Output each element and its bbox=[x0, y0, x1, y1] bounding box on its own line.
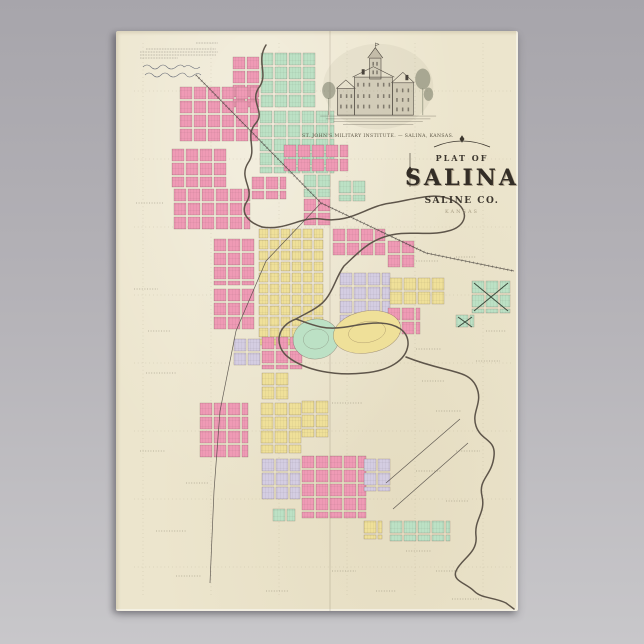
lot-lines bbox=[230, 217, 242, 229]
lot-lines bbox=[234, 353, 246, 365]
lot-lines bbox=[302, 456, 314, 468]
lot-lines bbox=[276, 365, 288, 369]
lot-lines bbox=[172, 177, 184, 187]
lot-lines bbox=[228, 303, 240, 315]
lot-lines bbox=[486, 281, 498, 293]
building-engraving bbox=[320, 43, 436, 129]
lot-lines bbox=[284, 159, 296, 171]
lot-lines bbox=[303, 67, 315, 79]
lot-lines bbox=[261, 95, 273, 107]
lot-lines bbox=[340, 301, 352, 313]
lot-lines bbox=[316, 484, 328, 496]
lot-lines bbox=[214, 431, 226, 443]
lot-lines bbox=[234, 339, 246, 351]
lot-lines bbox=[262, 473, 274, 485]
lot-lines bbox=[228, 431, 240, 443]
lot-lines bbox=[186, 177, 198, 187]
lot-lines bbox=[270, 240, 279, 249]
lot-lines bbox=[200, 431, 212, 443]
lot-lines bbox=[233, 71, 245, 83]
map-title-plat-of: PLAT OF bbox=[436, 153, 489, 163]
lot-lines bbox=[298, 159, 310, 171]
lot-lines bbox=[312, 159, 324, 171]
lot-lines bbox=[228, 289, 240, 301]
lot-lines bbox=[275, 431, 287, 443]
lot-lines bbox=[281, 240, 290, 249]
lot-lines bbox=[303, 262, 312, 271]
lot-lines bbox=[432, 521, 444, 533]
lot-lines bbox=[202, 189, 214, 201]
lot-lines bbox=[214, 253, 226, 265]
lot-lines bbox=[364, 459, 376, 471]
lot-lines bbox=[270, 262, 279, 271]
lot-lines bbox=[368, 273, 380, 285]
lot-lines bbox=[275, 67, 287, 79]
lot-lines bbox=[354, 287, 366, 299]
lot-lines bbox=[304, 175, 316, 187]
lot-lines bbox=[214, 289, 226, 301]
lot-lines bbox=[318, 199, 330, 211]
lot-lines bbox=[390, 535, 402, 541]
lot-lines bbox=[378, 535, 382, 539]
lot-lines bbox=[214, 149, 226, 161]
signature-script bbox=[143, 65, 201, 77]
lot-lines bbox=[292, 284, 301, 293]
lot-lines bbox=[222, 87, 234, 99]
lot-lines bbox=[390, 278, 402, 290]
lot-lines bbox=[262, 387, 274, 399]
lot-lines bbox=[340, 159, 348, 171]
lot-lines bbox=[340, 145, 348, 157]
lot-lines bbox=[186, 163, 198, 175]
lot-lines bbox=[194, 129, 206, 141]
lot-lines bbox=[248, 339, 260, 351]
lot-lines bbox=[340, 273, 352, 285]
lot-lines bbox=[446, 535, 450, 541]
lot-lines bbox=[174, 203, 186, 215]
lot-lines bbox=[404, 278, 416, 290]
lot-lines bbox=[259, 240, 268, 249]
lot-lines bbox=[228, 267, 240, 279]
lot-lines bbox=[180, 101, 192, 113]
lot-lines bbox=[354, 273, 366, 285]
lot-lines bbox=[262, 351, 274, 363]
lot-lines bbox=[275, 417, 287, 429]
lot-lines bbox=[200, 445, 212, 457]
lot-lines bbox=[242, 445, 248, 457]
lot-lines bbox=[180, 87, 192, 99]
lot-lines bbox=[200, 163, 212, 175]
studio-background: { "poster": { "title": { "plat_of": "PLA… bbox=[0, 0, 644, 644]
lot-lines bbox=[344, 470, 356, 482]
lot-lines bbox=[216, 189, 228, 201]
lot-lines bbox=[186, 149, 198, 161]
lot-lines bbox=[303, 273, 312, 282]
lot-lines bbox=[358, 512, 366, 518]
lot-lines bbox=[202, 203, 214, 215]
lot-lines bbox=[330, 456, 342, 468]
lot-lines bbox=[402, 308, 414, 320]
lot-lines bbox=[302, 111, 314, 123]
lot-lines bbox=[364, 487, 376, 491]
lot-lines bbox=[247, 71, 259, 83]
lot-lines bbox=[364, 473, 376, 485]
lot-lines bbox=[303, 53, 315, 65]
lot-lines bbox=[266, 177, 278, 189]
lot-lines bbox=[242, 239, 254, 251]
lot-lines bbox=[180, 115, 192, 127]
lot-lines bbox=[188, 189, 200, 201]
lot-lines bbox=[292, 229, 301, 238]
lot-lines bbox=[472, 309, 484, 313]
lot-lines bbox=[280, 177, 286, 189]
engraving-caption: ST. JOHN'S MILITARY INSTITUTE. — SALINA,… bbox=[302, 133, 454, 139]
lot-lines bbox=[275, 81, 287, 93]
lot-lines bbox=[276, 337, 288, 349]
lot-lines bbox=[333, 229, 345, 241]
lot-lines bbox=[260, 139, 272, 151]
lot-lines bbox=[382, 287, 390, 299]
lot-lines bbox=[402, 255, 414, 267]
lot-lines bbox=[281, 295, 290, 304]
lot-lines bbox=[270, 295, 279, 304]
lot-lines bbox=[266, 191, 278, 199]
lot-lines bbox=[230, 203, 242, 215]
lot-lines bbox=[261, 403, 273, 415]
lot-lines bbox=[290, 487, 300, 499]
lot-lines bbox=[303, 295, 312, 304]
lot-lines bbox=[314, 284, 323, 293]
lot-lines bbox=[333, 243, 345, 255]
lot-lines bbox=[418, 292, 430, 304]
lot-lines bbox=[276, 473, 288, 485]
lot-lines bbox=[276, 387, 288, 399]
lot-lines bbox=[330, 111, 334, 123]
lot-lines bbox=[281, 251, 290, 260]
lot-lines bbox=[303, 284, 312, 293]
lot-lines bbox=[248, 353, 260, 365]
lot-lines bbox=[418, 521, 430, 533]
lot-lines bbox=[290, 459, 300, 471]
lot-lines bbox=[262, 337, 274, 349]
lot-lines bbox=[214, 445, 226, 457]
lot-lines bbox=[202, 217, 214, 229]
lot-lines bbox=[326, 159, 338, 171]
lot-lines bbox=[228, 317, 240, 329]
lot-lines bbox=[228, 417, 240, 429]
lot-lines bbox=[281, 273, 290, 282]
lot-lines bbox=[314, 240, 323, 249]
lot-lines bbox=[368, 287, 380, 299]
lot-lines bbox=[262, 373, 274, 385]
lot-lines bbox=[314, 262, 323, 271]
lot-lines bbox=[416, 322, 420, 334]
lot-lines bbox=[281, 284, 290, 293]
lot-lines bbox=[361, 229, 373, 241]
lot-lines bbox=[222, 129, 234, 141]
lot-lines bbox=[432, 278, 444, 290]
lot-lines bbox=[470, 315, 474, 327]
city-blocks bbox=[172, 53, 510, 541]
lot-lines bbox=[281, 306, 290, 315]
lot-lines bbox=[200, 417, 212, 429]
lot-lines bbox=[172, 163, 184, 175]
lot-lines bbox=[242, 403, 248, 415]
lot-lines bbox=[289, 431, 301, 443]
lot-lines bbox=[318, 175, 330, 187]
lot-lines bbox=[242, 281, 254, 285]
lot-lines bbox=[214, 267, 226, 279]
lot-lines bbox=[358, 498, 366, 510]
lot-lines bbox=[281, 262, 290, 271]
lot-lines bbox=[289, 403, 301, 415]
lot-lines bbox=[214, 163, 226, 175]
lot-lines bbox=[208, 115, 220, 127]
lot-lines bbox=[275, 53, 287, 65]
lot-lines bbox=[303, 95, 315, 107]
lot-lines bbox=[242, 431, 248, 443]
lot-lines bbox=[292, 251, 301, 260]
lot-lines bbox=[276, 459, 288, 471]
lot-lines bbox=[364, 535, 376, 539]
lot-lines bbox=[316, 111, 328, 123]
lot-lines bbox=[174, 217, 186, 229]
lot-lines bbox=[303, 240, 312, 249]
lot-lines bbox=[316, 512, 328, 518]
lot-lines bbox=[302, 498, 314, 510]
lot-lines bbox=[276, 373, 288, 385]
lot-lines bbox=[378, 487, 390, 491]
lot-lines bbox=[200, 177, 212, 187]
lot-lines bbox=[242, 267, 254, 279]
lot-lines bbox=[216, 217, 228, 229]
lot-lines bbox=[180, 129, 192, 141]
lot-lines bbox=[228, 403, 240, 415]
lot-lines bbox=[292, 240, 301, 249]
lot-lines bbox=[214, 239, 226, 251]
lot-lines bbox=[274, 125, 286, 137]
map-title-state: KANSAS bbox=[445, 209, 479, 215]
lot-lines bbox=[188, 217, 200, 229]
map-title-city: SALINA bbox=[405, 165, 518, 191]
lot-lines bbox=[303, 81, 315, 93]
lot-lines bbox=[261, 81, 273, 93]
lot-lines bbox=[298, 145, 310, 157]
lot-lines bbox=[259, 306, 268, 315]
lot-lines bbox=[276, 351, 288, 363]
lot-lines bbox=[316, 470, 328, 482]
lot-lines bbox=[259, 328, 268, 337]
lot-lines bbox=[236, 129, 248, 141]
lot-lines bbox=[344, 484, 356, 496]
lot-lines bbox=[404, 292, 416, 304]
lot-lines bbox=[200, 149, 212, 161]
lot-lines bbox=[259, 229, 268, 238]
lot-lines bbox=[260, 153, 272, 165]
lot-lines bbox=[314, 273, 323, 282]
lot-lines bbox=[344, 512, 356, 518]
lot-lines bbox=[216, 203, 228, 215]
lot-lines bbox=[432, 535, 444, 541]
lot-lines bbox=[500, 281, 510, 293]
lot-lines bbox=[188, 203, 200, 215]
lot-lines bbox=[314, 229, 323, 238]
lot-lines bbox=[303, 229, 312, 238]
lot-lines bbox=[261, 445, 273, 453]
lot-lines bbox=[194, 115, 206, 127]
lot-lines bbox=[316, 456, 328, 468]
lot-lines bbox=[288, 111, 300, 123]
lot-lines bbox=[288, 125, 300, 137]
lot-lines bbox=[364, 521, 376, 533]
lot-lines bbox=[316, 429, 328, 437]
lot-lines bbox=[289, 53, 301, 65]
lot-lines bbox=[375, 243, 385, 255]
lot-lines bbox=[194, 87, 206, 99]
lot-lines bbox=[339, 195, 351, 201]
lot-lines bbox=[214, 317, 226, 329]
lot-lines bbox=[500, 309, 510, 313]
lot-lines bbox=[292, 295, 301, 304]
certification-note bbox=[140, 43, 218, 58]
lot-lines bbox=[275, 403, 287, 415]
lot-lines bbox=[292, 262, 301, 271]
map-poster: ST. JOHN'S MILITARY INSTITUTE. — SALINA,… bbox=[116, 31, 518, 611]
lot-lines bbox=[287, 509, 295, 521]
lot-lines bbox=[284, 145, 296, 157]
lot-lines bbox=[318, 189, 330, 197]
lot-lines bbox=[289, 445, 301, 453]
lot-lines bbox=[418, 278, 430, 290]
lot-lines bbox=[340, 287, 352, 299]
lot-lines bbox=[262, 487, 274, 499]
lot-lines bbox=[290, 365, 302, 369]
lot-lines bbox=[302, 512, 314, 518]
lot-lines bbox=[418, 535, 430, 541]
lot-lines bbox=[289, 67, 301, 79]
tower bbox=[370, 58, 381, 79]
lot-lines bbox=[316, 415, 328, 427]
lot-lines bbox=[378, 521, 382, 533]
lot-lines bbox=[194, 101, 206, 113]
lot-lines bbox=[260, 167, 272, 173]
lot-lines bbox=[270, 273, 279, 282]
lot-lines bbox=[330, 484, 342, 496]
lot-lines bbox=[432, 292, 444, 304]
lot-lines bbox=[228, 253, 240, 265]
lot-lines bbox=[446, 521, 450, 533]
lot-lines bbox=[302, 470, 314, 482]
lot-lines bbox=[242, 289, 254, 301]
lot-lines bbox=[404, 521, 416, 533]
lot-lines bbox=[208, 101, 220, 113]
lot-lines bbox=[236, 87, 248, 99]
lot-lines bbox=[270, 284, 279, 293]
lot-lines bbox=[262, 365, 274, 369]
lot-lines bbox=[214, 177, 226, 187]
lot-lines bbox=[252, 177, 264, 189]
lot-lines bbox=[208, 129, 220, 141]
lot-lines bbox=[260, 125, 272, 137]
lot-lines bbox=[233, 57, 245, 69]
lot-lines bbox=[273, 509, 285, 521]
lot-lines bbox=[276, 487, 288, 499]
lot-lines bbox=[404, 535, 416, 541]
lot-lines bbox=[214, 281, 226, 285]
lot-lines bbox=[289, 81, 301, 93]
lot-lines bbox=[344, 456, 356, 468]
lot-lines bbox=[344, 498, 356, 510]
lot-lines bbox=[228, 281, 240, 285]
lot-lines bbox=[289, 95, 301, 107]
lot-lines bbox=[378, 473, 390, 485]
lot-lines bbox=[270, 229, 279, 238]
lot-lines bbox=[316, 401, 328, 413]
lot-lines bbox=[242, 417, 248, 429]
railroad-track bbox=[386, 419, 460, 483]
lot-lines bbox=[290, 473, 300, 485]
lot-lines bbox=[388, 255, 400, 267]
lot-lines bbox=[200, 403, 212, 415]
lot-lines bbox=[230, 189, 242, 201]
lot-lines bbox=[259, 295, 268, 304]
lot-lines bbox=[416, 308, 420, 320]
lot-lines bbox=[289, 417, 301, 429]
lot-lines bbox=[247, 57, 259, 69]
lot-lines bbox=[330, 512, 342, 518]
lot-lines bbox=[228, 445, 240, 457]
lot-lines bbox=[472, 281, 484, 293]
lot-lines bbox=[292, 273, 301, 282]
lot-lines bbox=[228, 239, 240, 251]
lot-lines bbox=[222, 115, 234, 127]
lot-lines bbox=[242, 253, 254, 265]
lot-lines bbox=[390, 292, 402, 304]
lot-lines bbox=[302, 401, 314, 413]
lot-lines bbox=[302, 415, 314, 427]
lot-lines bbox=[261, 417, 273, 429]
lot-lines bbox=[353, 181, 365, 193]
lot-lines bbox=[303, 251, 312, 260]
lot-lines bbox=[259, 284, 268, 293]
lot-lines bbox=[262, 459, 274, 471]
lot-lines bbox=[259, 251, 268, 260]
lot-lines bbox=[214, 303, 226, 315]
lot-lines bbox=[304, 199, 316, 211]
lot-lines bbox=[302, 429, 314, 437]
lot-lines bbox=[252, 191, 264, 199]
lot-lines bbox=[388, 241, 400, 253]
lot-lines bbox=[274, 111, 286, 123]
lot-lines bbox=[292, 306, 301, 315]
lot-lines bbox=[172, 149, 184, 161]
lot-lines bbox=[390, 521, 402, 533]
lot-lines bbox=[270, 306, 279, 315]
left-wing bbox=[337, 89, 354, 116]
lot-lines bbox=[330, 470, 342, 482]
lot-lines bbox=[270, 317, 279, 326]
lot-lines bbox=[214, 417, 226, 429]
lot-lines bbox=[270, 328, 279, 337]
lot-lines bbox=[472, 295, 484, 307]
lot-lines bbox=[275, 95, 287, 107]
lot-lines bbox=[316, 498, 328, 510]
lot-lines bbox=[382, 273, 390, 285]
lot-lines bbox=[302, 484, 314, 496]
lot-lines bbox=[312, 145, 324, 157]
lot-lines bbox=[275, 445, 287, 453]
lot-lines bbox=[378, 459, 390, 471]
